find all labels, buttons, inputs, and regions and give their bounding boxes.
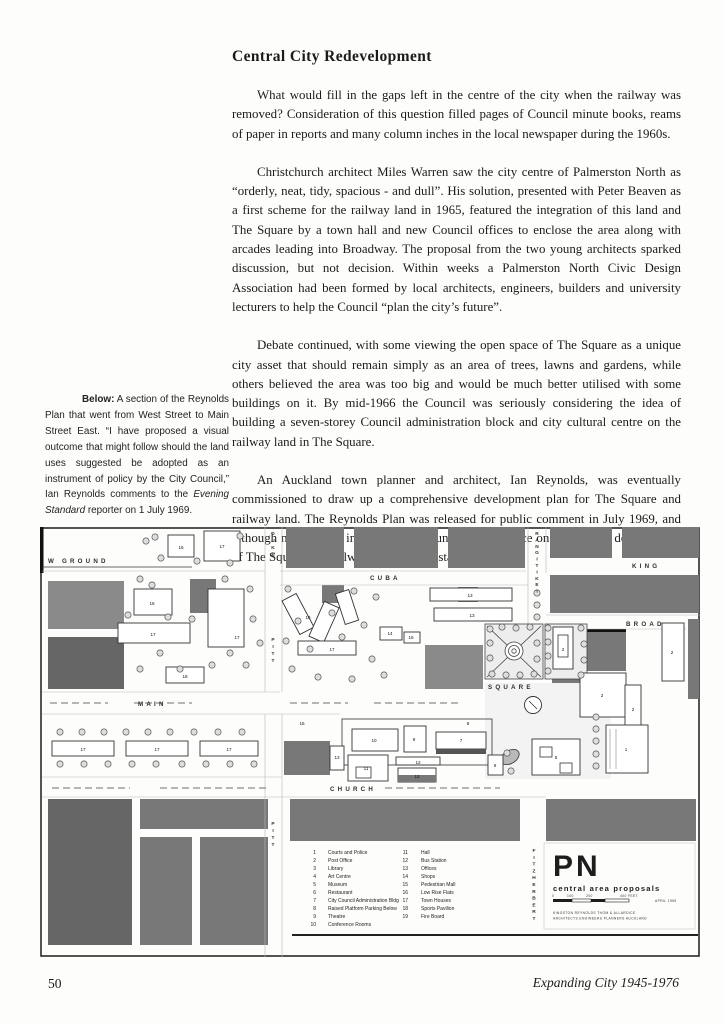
caption-text-end: reporter on 1 July 1969. [85, 505, 192, 516]
legend-item-number: 8 [313, 906, 316, 912]
tree-icon [517, 672, 523, 678]
tree-icon [361, 622, 367, 628]
tree-icon [145, 729, 151, 735]
tree-icon [79, 729, 85, 735]
pn-initials: PN [553, 850, 601, 883]
legend-item-label: Hall [421, 850, 430, 856]
legend-item-label: Fire Board [421, 914, 445, 920]
tree-icon [545, 653, 551, 659]
tree-icon [137, 576, 143, 582]
tree-icon [243, 662, 249, 668]
tree-icon [105, 761, 111, 767]
reynolds-plan-map: 1617161717161718131314152221281097111213… [40, 527, 700, 962]
building-number: 8 [467, 721, 470, 726]
running-book-title: Expanding City 1945-1976 [533, 975, 679, 991]
legend-item-number: 5 [313, 882, 316, 888]
tree-icon [250, 616, 256, 622]
legend-item-number: 11 [403, 850, 408, 856]
street-label-cuba: CUBA [370, 575, 401, 582]
tree-icon [351, 588, 357, 594]
building-number: 13 [334, 755, 340, 760]
tree-icon [125, 612, 131, 618]
tree-icon [203, 761, 209, 767]
tree-icon [129, 761, 135, 767]
building-number: 15 [299, 721, 305, 726]
pn-subtitle: central area proposals [553, 884, 660, 893]
tree-icon [534, 602, 540, 608]
tree-icon [239, 729, 245, 735]
tree-icon [227, 650, 233, 656]
legend-item-label: Low Rise Flats [421, 890, 454, 896]
legend-item-label: Courts and Police [328, 850, 368, 856]
tree-icon [215, 729, 221, 735]
tree-icon [593, 738, 599, 744]
tree-icon [179, 761, 185, 767]
tree-icon [508, 768, 514, 774]
legend-item-number: 15 [402, 882, 408, 888]
tree-icon [227, 560, 233, 566]
plan-date: APRIL 1969 [655, 899, 677, 903]
paragraph-1: What would fill in the gaps left in the … [232, 86, 681, 144]
building-number: 13 [467, 593, 473, 598]
tree-icon [593, 751, 599, 757]
tree-icon [153, 761, 159, 767]
legend-item-label: Restaurant [328, 890, 353, 896]
building-number: 2 [562, 647, 565, 652]
tree-icon [209, 662, 215, 668]
credit-line-1: KINGSTON REYNOLDS THOM & ALLARDICE [553, 911, 636, 915]
legend-item-label: Shops [421, 874, 436, 880]
tree-icon [137, 666, 143, 672]
street-label-king: KING [632, 563, 660, 570]
tree-icon [581, 641, 587, 647]
legend-item-number: 18 [402, 906, 408, 912]
tree-icon [227, 761, 233, 767]
street-label-main: MAIN [138, 701, 167, 708]
tree-icon [534, 640, 540, 646]
legend-item-number: 7 [313, 898, 316, 904]
main-text-column: Central City Redevelopment What would fi… [232, 48, 681, 587]
tree-icon [237, 533, 243, 539]
caption-label: Below: [82, 394, 114, 405]
tree-icon [503, 672, 509, 678]
tree-icon [527, 624, 533, 630]
building-number: 1 [625, 747, 628, 752]
tree-icon [513, 625, 519, 631]
legend-item-label: Library [328, 866, 344, 872]
legend-item-label: Bus Station [421, 858, 447, 864]
tree-icon [531, 671, 537, 677]
tree-icon [285, 586, 291, 592]
tree-icon [534, 614, 540, 620]
tree-icon [487, 655, 493, 661]
building-number: 9 [413, 737, 416, 742]
legend-item-number: 10 [310, 922, 316, 928]
map-border-corner [40, 527, 44, 573]
street-label-pitt-north: PITT [271, 637, 275, 664]
scale-tick-0: 0 [552, 894, 554, 898]
tree-icon [165, 614, 171, 620]
legend-item-label: Offices [421, 866, 437, 872]
building-number: 7 [460, 738, 463, 743]
tree-icon [593, 726, 599, 732]
building-number: 5 [555, 755, 558, 760]
tree-icon [149, 582, 155, 588]
street-label-showground: W GROUND [48, 558, 109, 565]
scale-tick-200: 200 [586, 894, 593, 898]
tree-icon [578, 672, 584, 678]
page-number: 50 [48, 976, 62, 992]
legend-item-label: Theatre [328, 914, 345, 920]
paragraph-3: Debate continued, with some viewing the … [232, 336, 681, 452]
legend-item-label: Museum [328, 882, 347, 888]
legend-item-number: 12 [402, 858, 408, 864]
tree-icon [222, 576, 228, 582]
scale-tick-100: 100 [567, 894, 574, 898]
tree-icon [158, 555, 164, 561]
tree-icon [157, 650, 163, 656]
legend-item-label: Conference Rooms [328, 922, 372, 928]
tree-icon [123, 729, 129, 735]
building-number: 17 [150, 632, 156, 637]
building-number: 16 [149, 601, 155, 606]
tree-icon [489, 671, 495, 677]
building-number: 13 [469, 613, 475, 618]
street-label-church: CHURCH [330, 786, 376, 793]
building-number: 17 [234, 635, 240, 640]
tree-icon [381, 672, 387, 678]
building-number: 17 [219, 544, 225, 549]
building-number: 2 [601, 693, 604, 698]
tree-icon [545, 639, 551, 645]
tree-icon [578, 625, 584, 631]
book-page: Central City Redevelopment What would fi… [0, 0, 724, 1024]
building-number: 2 [671, 650, 674, 655]
tree-icon [251, 761, 257, 767]
legend-item-number: 13 [402, 866, 408, 872]
tree-icon [593, 714, 599, 720]
legend-item-number: 6 [313, 890, 316, 896]
legend-item-number: 16 [402, 890, 408, 896]
scale-tick-400: 400 FEET [620, 894, 638, 898]
tree-icon [499, 624, 505, 630]
credit-line-2: ARCHITECTS ENGINEERS PLANNERS AUCKLAND [553, 917, 647, 921]
building-number: 13 [414, 774, 420, 779]
tree-icon [307, 646, 313, 652]
building-number: 17 [329, 647, 335, 652]
legend-item-number: 14 [402, 874, 408, 880]
street-label-pitt-south: PITT [271, 821, 275, 848]
legend-item-label: Town Houses [421, 898, 452, 904]
tree-icon [487, 626, 493, 632]
tree-icon [191, 729, 197, 735]
tree-icon [593, 763, 599, 769]
legend-item-label: Pedestrian Mall [421, 882, 455, 888]
tree-icon [329, 610, 335, 616]
map-legend: 1Courts and Police2Post Office3Library4A… [304, 845, 522, 931]
tree-icon [315, 674, 321, 680]
tree-icon [373, 594, 379, 600]
tree-icon [194, 558, 200, 564]
tree-icon [283, 638, 289, 644]
legend-item-label: Raised Platform Parking Below [328, 906, 397, 912]
tree-icon [534, 656, 540, 662]
caption-text: A section of the Reynolds Plan that went… [45, 394, 229, 500]
building-number: 14 [387, 631, 393, 636]
building-number: 10 [371, 738, 377, 743]
tree-icon [257, 640, 263, 646]
building-number: 17 [226, 747, 232, 752]
paragraph-2: Christchurch architect Miles Warren saw … [232, 163, 681, 317]
building-number: 15 [408, 635, 414, 640]
tree-icon [101, 729, 107, 735]
tree-icon [545, 668, 551, 674]
margin-caption: Below: A section of the Reynolds Plan th… [45, 392, 229, 519]
tree-icon [581, 657, 587, 663]
building-number: 12 [415, 760, 421, 765]
legend-item-number: 1 [313, 850, 316, 856]
tree-icon [504, 750, 510, 756]
building-number: 17 [154, 747, 160, 752]
tree-icon [143, 538, 149, 544]
legend-item-label: Art Centre [328, 874, 351, 880]
tree-icon [369, 656, 375, 662]
tree-icon [289, 666, 295, 672]
legend-item-number: 17 [402, 898, 408, 904]
legend-item-label: Sports Pavilion [421, 906, 455, 912]
legend-item-label: City Council Administration Bldg [328, 898, 399, 904]
building-number: 17 [80, 747, 86, 752]
page-title: Central City Redevelopment [232, 48, 681, 66]
legend-item-label: Post Office [328, 858, 353, 864]
map-svg: 1617161717161718131314152221281097111213… [40, 527, 700, 962]
building-number: 2 [632, 707, 635, 712]
building-number: 18 [182, 674, 188, 679]
building-number: 16 [178, 545, 184, 550]
tree-icon [167, 729, 173, 735]
building-number: 11 [364, 766, 369, 771]
legend-item-number: 2 [313, 858, 316, 864]
legend-item-number: 4 [313, 874, 316, 880]
tree-icon [189, 616, 195, 622]
tree-icon [487, 640, 493, 646]
tree-icon [349, 676, 355, 682]
square-fountain-outer [505, 642, 523, 660]
street-label-square: SQUARE [488, 684, 534, 691]
pn-title-box: PN central area proposals 0 100 200 400 … [544, 843, 695, 929]
tree-icon [295, 618, 301, 624]
tree-icon [81, 761, 87, 767]
street-label-rangitikei: RANGITIKEI [535, 531, 539, 595]
legend-item-number: 9 [313, 914, 316, 920]
tree-icon [177, 666, 183, 672]
tree-icon [57, 761, 63, 767]
tree-icon [247, 586, 253, 592]
tree-icon [339, 634, 345, 640]
tree-icon [57, 729, 63, 735]
legend-item-number: 3 [313, 866, 316, 872]
street-label-fitzherbert: FITZHERBERT [532, 848, 536, 922]
tree-icon [545, 625, 551, 631]
tree-icon [152, 534, 158, 540]
legend-item-number: 19 [402, 914, 408, 920]
building-number: 6 [494, 763, 497, 768]
street-label-duke: DUKE [271, 531, 275, 558]
building-number: 16 [305, 615, 311, 620]
street-label-broadway: BROAD [626, 621, 665, 628]
